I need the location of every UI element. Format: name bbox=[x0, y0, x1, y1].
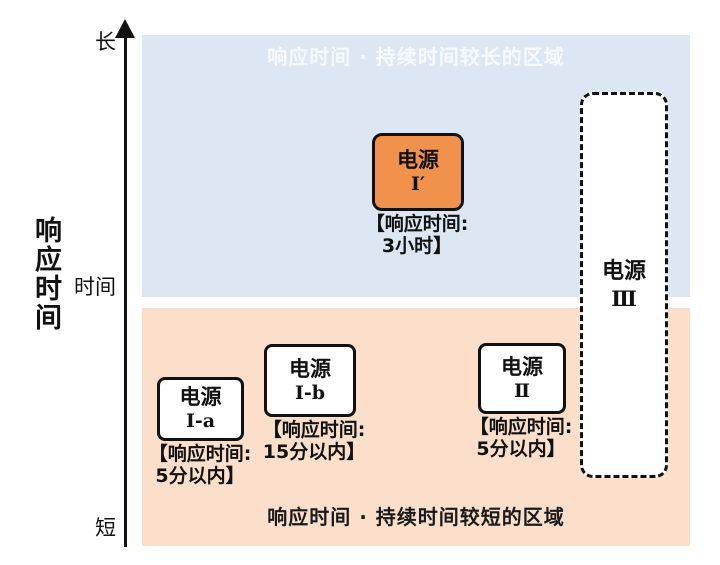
region-short-label: 响应时间 · 持续时间较短的区域 bbox=[142, 501, 690, 530]
axis-tick-short: 短 bbox=[86, 512, 116, 542]
diagram-canvas: 响应时间 · 持续时间较长的区域 响应时间 · 持续时间较短的区域 响应时间 长… bbox=[0, 0, 720, 565]
node-power-source-iii-numeral: Ⅲ bbox=[611, 286, 637, 311]
caption-power-source-i-b: 【响应时间: 15分以内】 bbox=[247, 420, 381, 464]
caption-line: 【响应时间: bbox=[454, 417, 588, 439]
node-power-source-i-prime-numeral: Ⅰ′ bbox=[411, 173, 425, 196]
axis-tick-long: 长 bbox=[86, 26, 116, 56]
caption-line: 15分以内】 bbox=[247, 442, 381, 464]
node-power-source-i-prime: 电源 Ⅰ′ bbox=[372, 133, 464, 211]
node-power-source-ii-numeral: Ⅱ bbox=[514, 380, 530, 403]
caption-line: 5分以内】 bbox=[135, 466, 265, 488]
caption-power-source-i-prime: 【响应时间: 3小时】 bbox=[347, 214, 487, 258]
node-power-source-iii: 电源 Ⅲ bbox=[580, 92, 668, 478]
node-power-source-iii-name: 电源 bbox=[602, 259, 646, 285]
caption-line: 【响应时间: bbox=[135, 444, 265, 466]
node-power-source-ii: 电源 Ⅱ bbox=[478, 343, 566, 414]
caption-line: 3小时】 bbox=[347, 236, 487, 258]
caption-power-source-ii: 【响应时间: 5分以内】 bbox=[454, 417, 588, 461]
node-power-source-i-a-numeral: Ⅰ-a bbox=[186, 410, 215, 433]
node-power-source-ii-name: 电源 bbox=[501, 355, 543, 380]
node-power-source-i-b-name: 电源 bbox=[289, 357, 331, 382]
caption-line: 5分以内】 bbox=[454, 439, 588, 461]
node-power-source-i-prime-name: 电源 bbox=[397, 148, 439, 173]
y-axis-title: 响应时间 bbox=[26, 216, 65, 332]
node-power-source-i-a-name: 电源 bbox=[180, 385, 222, 410]
node-power-source-i-b: 电源 Ⅰ-b bbox=[264, 344, 356, 417]
caption-power-source-i-a: 【响应时间: 5分以内】 bbox=[135, 444, 265, 488]
node-power-source-i-a: 电源 Ⅰ-a bbox=[157, 377, 244, 441]
region-long-label: 响应时间 · 持续时间较长的区域 bbox=[142, 41, 690, 70]
axis-tick-time: 时间 bbox=[66, 271, 116, 301]
caption-line: 【响应时间: bbox=[247, 420, 381, 442]
y-axis-line bbox=[124, 32, 127, 547]
node-power-source-i-b-numeral: Ⅰ-b bbox=[295, 382, 325, 405]
caption-line: 【响应时间: bbox=[347, 214, 487, 236]
